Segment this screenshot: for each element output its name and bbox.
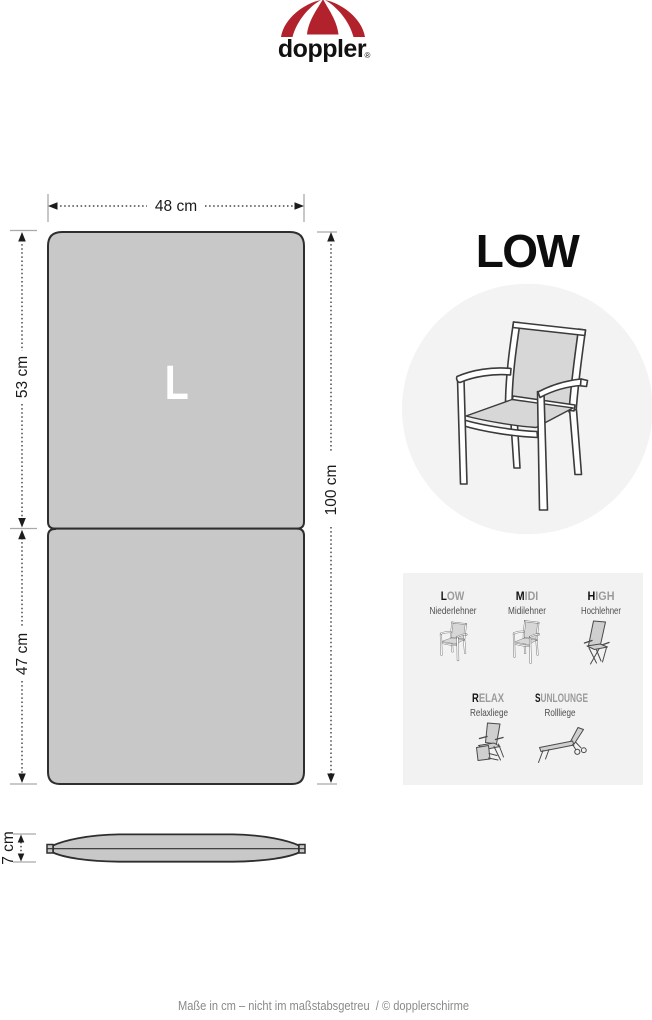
svg-text:Midilehner: Midilehner xyxy=(508,605,546,617)
svg-text:Hochlehner: Hochlehner xyxy=(581,605,621,617)
svg-text:Maße in cm – nicht im maßstabs: Maße in cm – nicht im maßstabsgetreu / ©… xyxy=(178,999,469,1013)
svg-text:7 cm: 7 cm xyxy=(0,831,17,865)
svg-text:Rollliege: Rollliege xyxy=(545,707,576,719)
svg-text:HIGH: HIGH xyxy=(588,589,615,603)
svg-text:53 cm: 53 cm xyxy=(14,356,31,398)
svg-text:LOW: LOW xyxy=(476,225,581,277)
svg-text:Niederlehner: Niederlehner xyxy=(430,605,477,617)
svg-text:47 cm: 47 cm xyxy=(14,633,31,675)
svg-text:100 cm: 100 cm xyxy=(323,465,340,516)
svg-text:RELAX: RELAX xyxy=(472,691,504,705)
svg-text:Relaxliege: Relaxliege xyxy=(470,707,508,719)
svg-text:LOW: LOW xyxy=(441,589,465,603)
svg-text:MIDI: MIDI xyxy=(516,589,539,603)
svg-text:L: L xyxy=(165,357,189,410)
svg-text:48 cm: 48 cm xyxy=(155,198,197,215)
svg-text:®: ® xyxy=(365,51,371,60)
svg-text:SUNLOUNGE: SUNLOUNGE xyxy=(535,691,588,705)
svg-text:doppler: doppler xyxy=(278,35,367,63)
